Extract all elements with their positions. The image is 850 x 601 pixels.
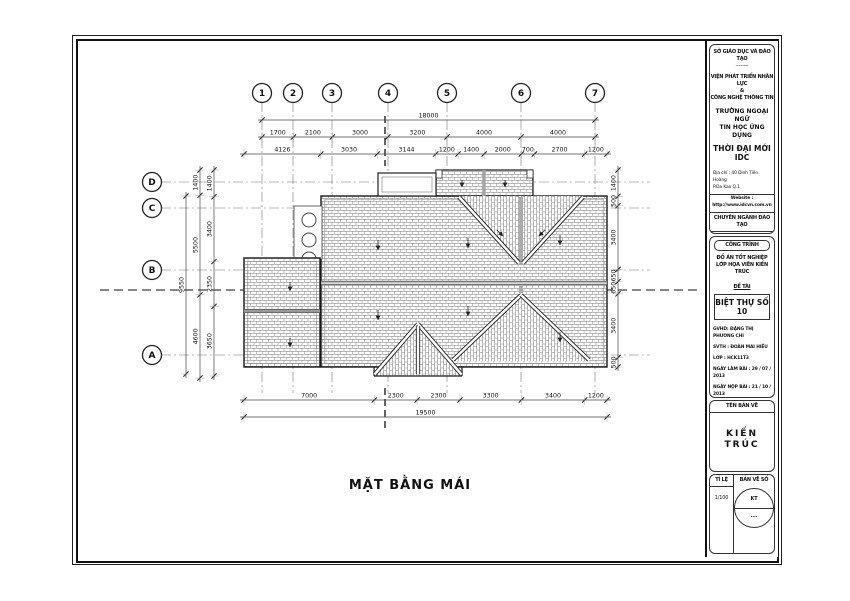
project-header: CÔNG TRÌNH <box>714 240 770 251</box>
dim-label: 19500 <box>415 410 435 417</box>
canopy-frame <box>378 173 436 196</box>
grid-bubble-label: 3 <box>329 89 335 99</box>
dim-label: 500 <box>611 195 618 207</box>
dim-label: 500 <box>611 356 618 368</box>
dim-label: 1200 <box>588 147 604 154</box>
title-block-sheetname-section: TÊN BẢN VẼ KIẾN TRÚC <box>709 400 775 472</box>
dim-label: 4600 <box>193 328 200 344</box>
sheet-no-bottom: .... <box>735 513 773 520</box>
project-line-2: LỚP HỌA VIÊN KIẾN TRÚC <box>710 262 774 276</box>
sheet-no-divider <box>735 508 773 509</box>
dim-label: 2100 <box>305 130 321 137</box>
roof-shapes <box>244 170 607 376</box>
dim-label: 3200 <box>409 130 425 137</box>
dim-label: 1400 <box>463 147 479 154</box>
dim-label: 18000 <box>418 113 438 120</box>
dim-label: 3144 <box>398 147 414 154</box>
dim-label: 1400 <box>611 175 618 191</box>
grid-bubble-label: 5 <box>444 89 450 99</box>
dim-label: 2700 <box>552 147 568 154</box>
grid-bubble-label: 1 <box>259 89 265 99</box>
grid-bubble-label: D <box>148 178 155 188</box>
grid-bubble-label: 7 <box>592 89 598 99</box>
dim-label: 3650 <box>207 333 214 349</box>
dim-label: 7000 <box>301 393 317 400</box>
dim-label: 3300 <box>483 393 499 400</box>
sheet-no-label: BẢN VẼ SỐ <box>734 477 774 484</box>
dim-label: 1400 <box>207 175 214 191</box>
dim-label: 1700 <box>270 130 286 137</box>
title-block-scale-section: TỈ LỆ 1/100 BẢN VẼ SỐ KT .... <box>709 474 775 554</box>
grid-bubble-label: 2 <box>290 89 296 99</box>
dim-label: 4000 <box>550 130 566 137</box>
dim-label: 2300 <box>388 393 404 400</box>
dim-label: 3400 <box>545 393 561 400</box>
class-line: LỚP : HCK11T3 <box>710 355 774 362</box>
advisor-line: GVHD: ĐẶNG THỊ PHƯƠNG CHI <box>710 326 774 340</box>
title-block-project-section: CÔNG TRÌNH ĐỒ ÁN TỐT NGHIỆP LỚP HỌA VIÊN… <box>709 236 775 398</box>
sheet-number-cell: BẢN VẼ SỐ KT .... <box>734 475 774 553</box>
vent-circle <box>302 213 316 227</box>
dim-label: 1200 <box>439 147 455 154</box>
dormer-post <box>527 170 533 178</box>
dim-label: 1200 <box>588 393 604 400</box>
dim-label: 4126 <box>274 147 290 154</box>
org-institute-1: VIỆN PHÁT TRIỂN NHÂN LỰC <box>710 74 774 88</box>
title-block-org-section: SỞ GIÁO DỤC VÀ ĐÀO TẠO -------- VIỆN PHÁ… <box>709 44 775 234</box>
dormer-post <box>436 170 442 178</box>
training-header: CHUYÊN NGÀNH ĐÀO TẠO <box>710 212 774 232</box>
scale-label: TỈ LỆ <box>710 475 733 487</box>
grid-bubble-label: 6 <box>518 89 524 99</box>
sheet-name-header: TÊN BẢN VẼ <box>710 401 774 413</box>
sheet-no-circle: KT .... <box>734 488 774 528</box>
org-website: Website : http://www.idcvn.com.vn <box>710 194 774 209</box>
plan-title: MẶT BẰNG MÁI <box>300 478 520 493</box>
dim-label: 650 <box>611 270 618 282</box>
org-institute-amp: & <box>710 88 774 95</box>
sheet-no-top: KT <box>735 496 773 503</box>
title-block: SỞ GIÁO DỤC VÀ ĐÀO TẠO -------- VIỆN PHÁ… <box>705 41 778 557</box>
project-line-1: ĐỒ ÁN TỐT NGHIỆP <box>710 255 774 262</box>
drawing-sheet: 1800017002100300032004000400041263030314… <box>0 0 850 601</box>
topic-value: BIỆT THỰ SỐ 10 <box>714 294 770 320</box>
topic-label: ĐỀ TÀI <box>710 284 774 291</box>
dim-label: 2000 <box>495 147 511 154</box>
scale-value: 1/100 <box>710 495 733 502</box>
org-address-2: P.Đa Kao Q.1 <box>710 184 774 191</box>
dim-label: 650 <box>611 282 618 294</box>
date-assigned-line: NGÀY LÀM BÀI : 29 / 07 / 2013 <box>710 366 774 380</box>
dim-label: 2300 <box>431 393 447 400</box>
grid-bubble-label: C <box>149 204 156 214</box>
student-line: SVTH : ĐOÀN MAI HIẾU <box>710 344 774 351</box>
org-brand: THỜI ĐẠI MỚI IDC <box>710 144 774 162</box>
dim-label: 700 <box>522 147 534 154</box>
org-institute-2: CÔNG NGHỆ THÔNG TIN <box>710 95 774 102</box>
dim-label: 3000 <box>352 130 368 137</box>
dim-label: 4000 <box>476 130 492 137</box>
grid-bubble-label: 4 <box>385 89 391 99</box>
dim-label: 3400 <box>611 318 618 334</box>
org-department: SỞ GIÁO DỤC VÀ ĐÀO TẠO <box>710 49 774 63</box>
org-school-2: TIN HỌC ỨNG DỤNG <box>710 124 774 140</box>
scale-cell: TỈ LỆ 1/100 <box>710 475 734 553</box>
dim-label: 9550 <box>179 277 186 293</box>
dim-label: 3030 <box>341 147 357 154</box>
date-submitted-line: NGÀY NỘP BÀI : 21 / 10 / 2013 <box>710 384 774 398</box>
org-divider: -------- <box>710 63 774 70</box>
org-school-1: TRƯỜNG NGOẠI NGỮ <box>710 108 774 124</box>
grid-bubble-label: B <box>149 266 156 276</box>
grid-bubble-label: A <box>149 351 156 361</box>
sheet-name: KIẾN TRÚC <box>710 429 774 451</box>
dim-label: 3400 <box>611 230 618 246</box>
dim-label: 3400 <box>207 221 214 237</box>
org-address-1: Địa chỉ : 40 Đinh Tiên Hoàng <box>710 170 774 184</box>
vent-circle <box>302 233 316 247</box>
dim-label: 5500 <box>193 237 200 253</box>
dim-label: 2350 <box>207 276 214 292</box>
dim-label: 1400 <box>193 175 200 191</box>
